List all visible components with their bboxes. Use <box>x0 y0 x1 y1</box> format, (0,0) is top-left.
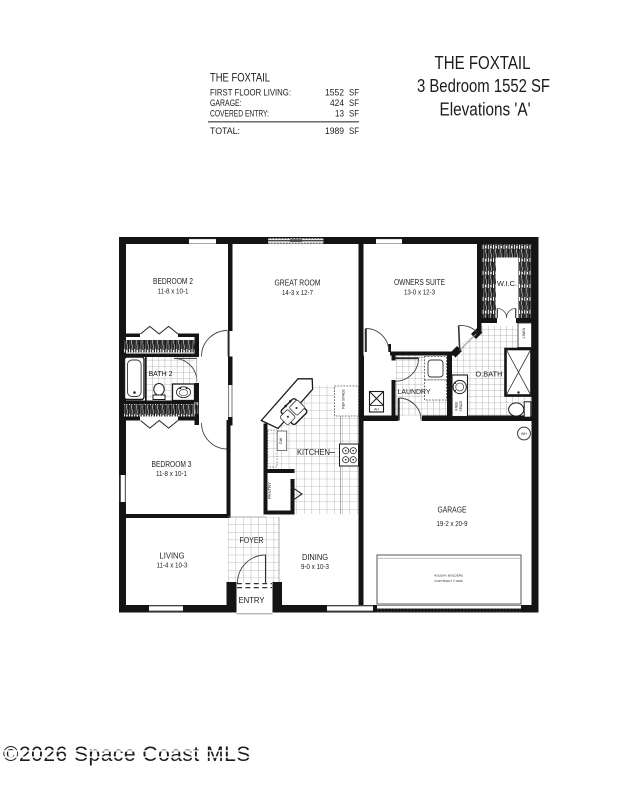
svg-text:OWNERS SUITE: OWNERS SUITE <box>394 278 445 287</box>
svg-text:3 Bedroom 1552 SF: 3 Bedroom 1552 SF <box>417 75 550 96</box>
svg-text:9-0 x 10-3: 9-0 x 10-3 <box>301 562 329 571</box>
svg-text:REF SPACE: REF SPACE <box>342 389 346 409</box>
svg-text:W.I.C.: W.I.C. <box>497 279 517 288</box>
svg-text:1552: 1552 <box>325 88 344 99</box>
svg-text:LINEN: LINEN <box>522 327 526 338</box>
svg-text:1989: 1989 <box>325 126 344 137</box>
svg-text:HOLIDAY BUILDERS: HOLIDAY BUILDERS <box>434 574 463 578</box>
svg-text:11-8 x 10-1: 11-8 x 10-1 <box>156 469 187 478</box>
svg-text:11-8 x 10-1: 11-8 x 10-1 <box>158 287 189 296</box>
svg-text:COPYRIGHT © 2006: COPYRIGHT © 2006 <box>434 579 463 583</box>
svg-text:AH: AH <box>374 407 379 411</box>
svg-text:KITCHEN: KITCHEN <box>297 448 330 457</box>
svg-text:SF: SF <box>349 88 359 99</box>
svg-text:SF: SF <box>349 126 359 137</box>
svg-text:ENTRY: ENTRY <box>239 595 265 605</box>
svg-text:PANTRY: PANTRY <box>267 482 272 499</box>
svg-text:Elevations 'A': Elevations 'A' <box>440 98 531 119</box>
svg-text:SF: SF <box>349 109 359 120</box>
svg-text:13-0 x 12-3: 13-0 x 12-3 <box>404 288 435 297</box>
svg-text:FIRST FLOOR LIVING:: FIRST FLOOR LIVING: <box>210 88 291 99</box>
svg-text:11-4 x 10-3: 11-4 x 10-3 <box>157 561 188 570</box>
svg-text:THE FOXTAIL: THE FOXTAIL <box>210 71 270 85</box>
svg-text:©2026 Space Coast MLS: ©2026 Space Coast MLS <box>3 743 251 766</box>
svg-text:DINING: DINING <box>302 553 328 562</box>
svg-text:BEDROOM 3: BEDROOM 3 <box>152 460 192 469</box>
svg-text:TOTAL:: TOTAL: <box>210 126 240 137</box>
svg-text:O.BATH: O.BATH <box>476 370 503 379</box>
svg-text:424: 424 <box>330 98 345 109</box>
svg-text:COVERED ENTRY:: COVERED ENTRY: <box>210 109 269 120</box>
svg-text:SF: SF <box>349 98 359 109</box>
svg-text:DW: DW <box>279 437 283 444</box>
svg-text:LIVING: LIVING <box>160 552 185 561</box>
svg-text:14-3 x 12-7: 14-3 x 12-7 <box>282 288 313 297</box>
svg-text:WH: WH <box>521 432 527 436</box>
svg-text:19-2 x 20-9: 19-2 x 20-9 <box>437 519 468 528</box>
svg-text:BATH 2: BATH 2 <box>149 369 173 378</box>
svg-text:LAUNDRY: LAUNDRY <box>398 387 431 396</box>
svg-text:BEDROOM 2: BEDROOM 2 <box>153 277 193 286</box>
svg-text:GREAT ROOM: GREAT ROOM <box>275 279 321 288</box>
svg-text:THE FOXTAIL: THE FOXTAIL <box>435 52 531 73</box>
svg-text:FOYER: FOYER <box>240 536 264 545</box>
svg-text:GARAGE:: GARAGE: <box>210 98 242 109</box>
svg-text:GARAGE: GARAGE <box>438 506 467 515</box>
svg-text:SPACE: SPACE <box>459 400 463 412</box>
svg-text:13: 13 <box>335 109 344 120</box>
